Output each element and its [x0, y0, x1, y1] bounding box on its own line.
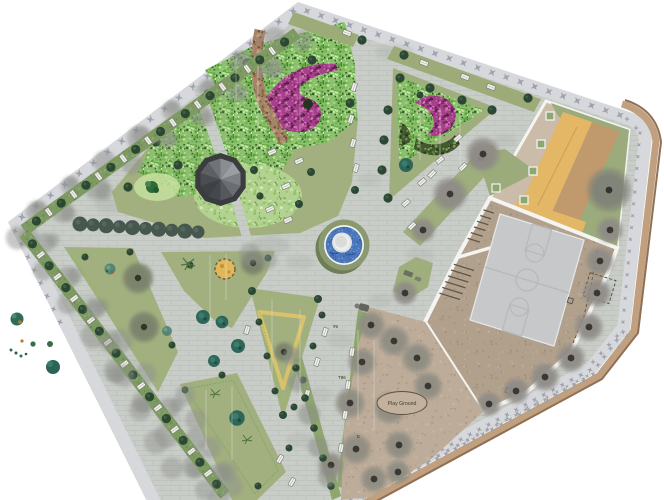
svg-text:E: E: [357, 434, 360, 439]
svg-text:Play Ground: Play Ground: [388, 401, 417, 407]
svg-text:T96: T96: [338, 375, 346, 380]
svg-text:#5: #5: [333, 324, 339, 329]
